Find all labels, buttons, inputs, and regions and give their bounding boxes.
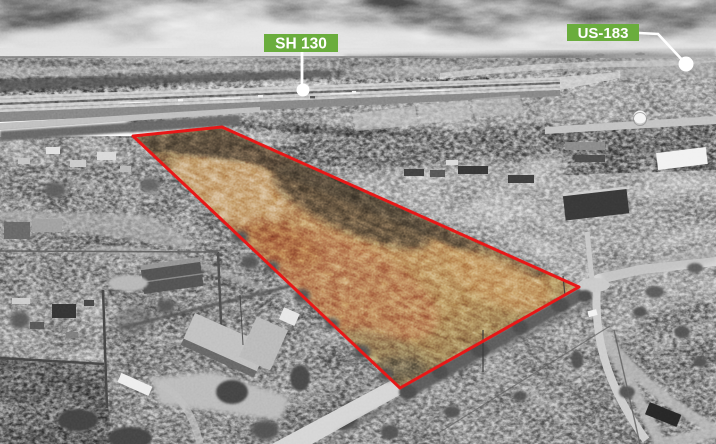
svg-text:SH 130: SH 130 [275,36,327,53]
svg-text:US-183: US-183 [578,25,629,42]
